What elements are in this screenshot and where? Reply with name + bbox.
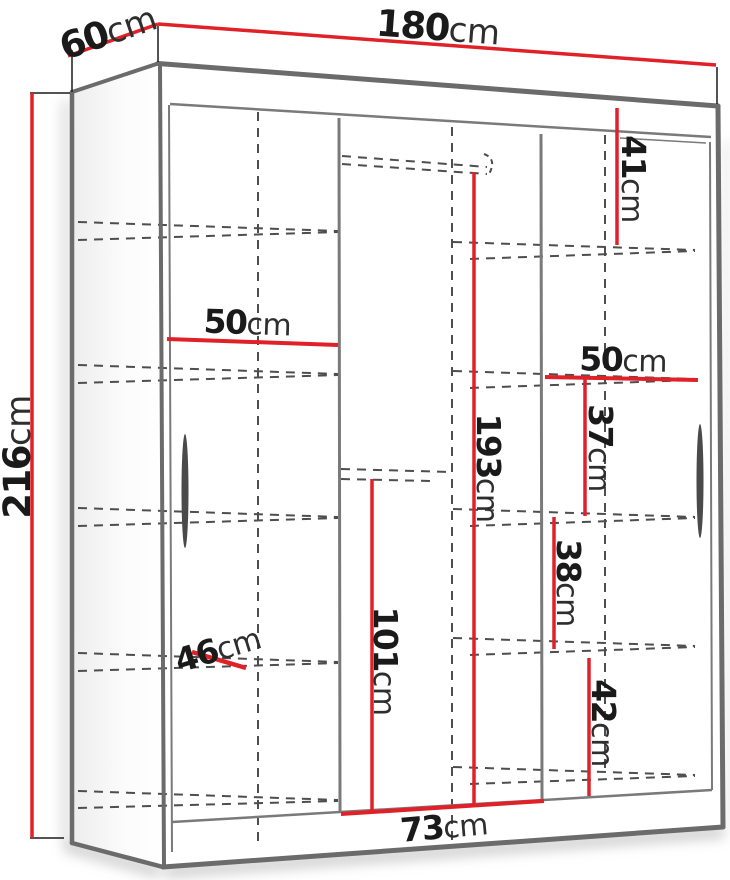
label-101: 101cm: [366, 606, 405, 715]
label-37: 37cm: [581, 404, 620, 492]
label-38: 38cm: [549, 539, 588, 627]
partition-2: [541, 134, 542, 800]
label-50-left: 50cm: [203, 301, 292, 343]
partition-1: [339, 118, 340, 812]
left-door-handle: [182, 434, 189, 548]
label-41: 41cm: [614, 135, 653, 223]
wardrobe-dimension-diagram: 180cm 60cm 216cm 41cm 50cm 50cm 37cm 38c…: [0, 0, 730, 880]
side-panel: [72, 63, 163, 867]
label-50-right: 50cm: [579, 339, 667, 380]
label-height-216: 216cm: [0, 395, 39, 519]
label-193: 193cm: [469, 413, 508, 522]
label-73: 73cm: [399, 803, 490, 849]
right-door-handle: [697, 424, 704, 538]
diagram-canvas: 180cm 60cm 216cm 41cm 50cm 50cm 37cm 38c…: [0, 0, 730, 880]
label-42: 42cm: [584, 679, 623, 767]
